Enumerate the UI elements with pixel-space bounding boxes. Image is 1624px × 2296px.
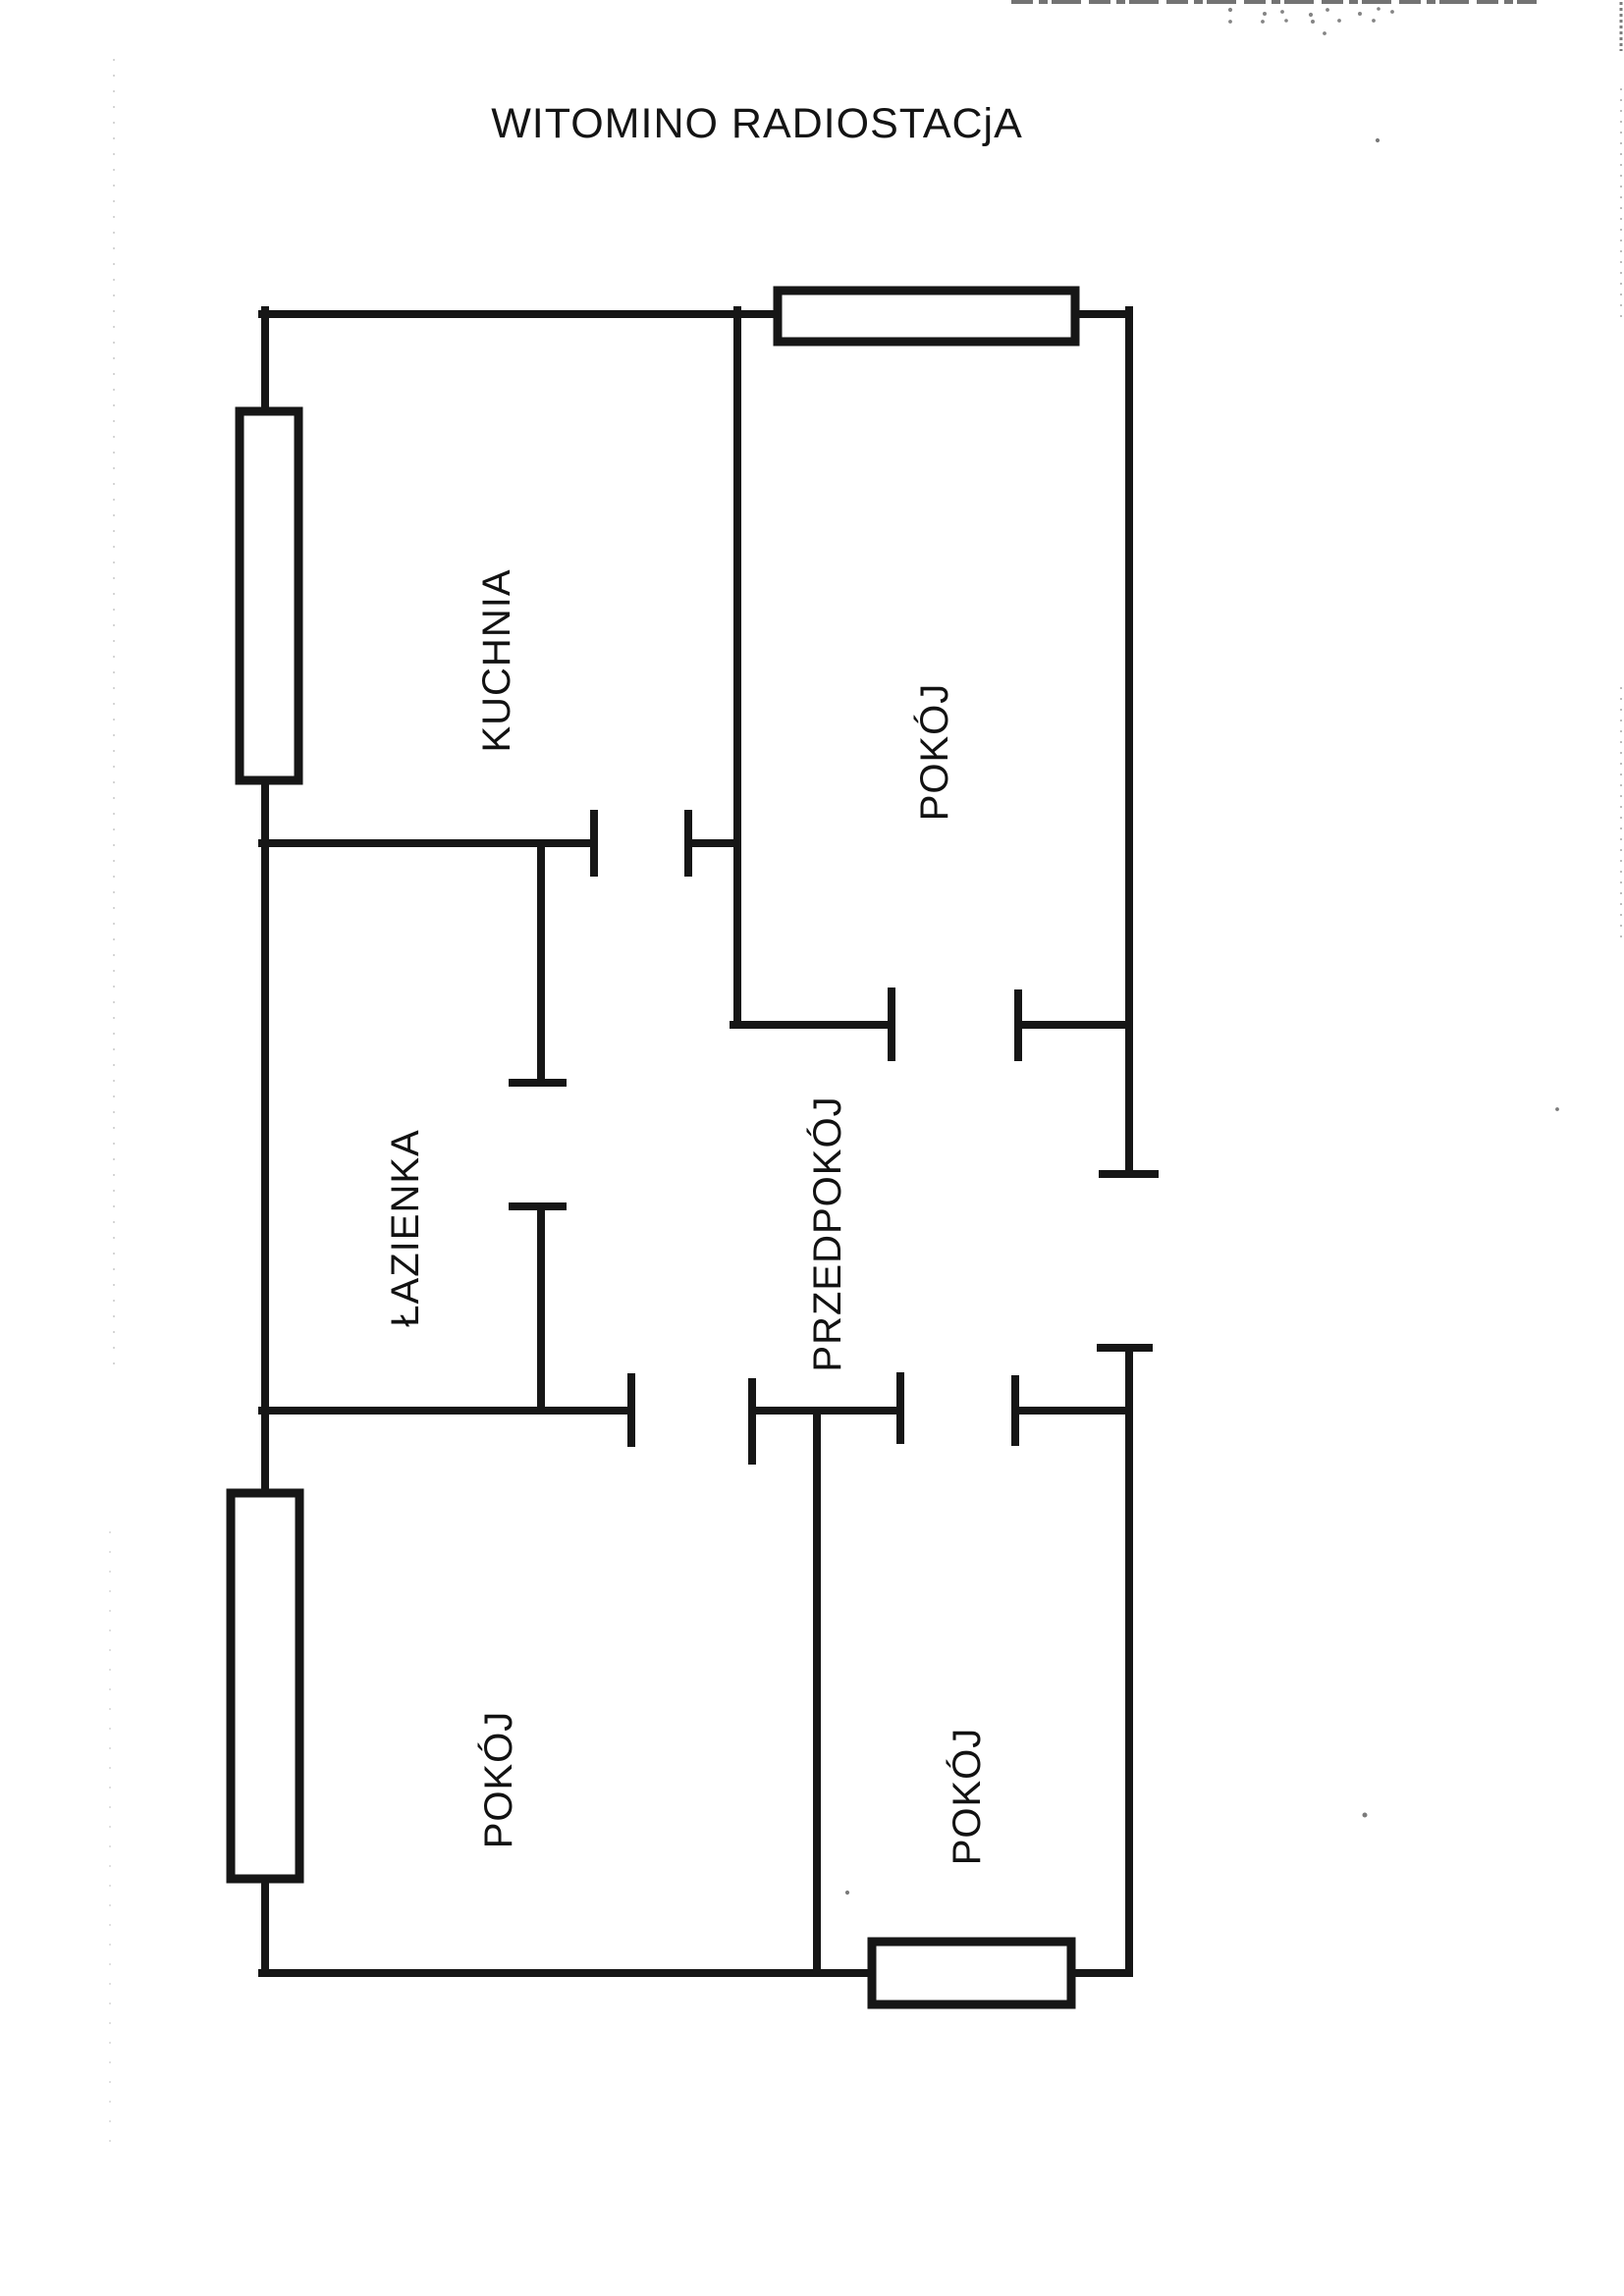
outer-wall-right-lower	[1101, 1348, 1149, 1973]
outer-wall-right-upper	[1103, 310, 1155, 1174]
window-bottom	[872, 1942, 1071, 2004]
room-label-pokoj-top-right: POKÓJ	[912, 683, 956, 822]
wall-bathroom-right-lower	[513, 1206, 563, 1411]
wall-top-right-room-bottom	[733, 991, 1129, 1057]
walls	[231, 291, 1155, 2004]
floor-plan-drawing: WITOMINO RADIOSTACjA	[0, 0, 1624, 2296]
window-top	[778, 291, 1075, 342]
room-label-pokoj-bottom-left: POKÓJ	[476, 1711, 520, 1849]
room-label-kuchnia: KUCHNIA	[475, 568, 518, 752]
wall-hallway-middle	[262, 1376, 1129, 1461]
wall-kitchen-bathroom	[262, 814, 737, 873]
stray-dots	[845, 138, 1558, 1894]
window-left-lower	[231, 1493, 299, 1879]
room-label-pokoj-bottom-right: POKÓJ	[945, 1728, 989, 1866]
room-labels: KUCHNIA POKÓJ ŁAZIENKA PRZEDPOKÓJ POKÓJ …	[384, 568, 989, 1865]
room-label-przedpokoj: PRZEDPOKÓJ	[805, 1095, 849, 1371]
scanned-floor-plan-page: WITOMINO RADIOSTACjA	[0, 0, 1624, 2296]
page-title: WITOMINO RADIOSTACjA	[491, 100, 1023, 147]
room-label-lazienka: ŁAZIENKA	[384, 1129, 427, 1326]
scan-noise-dots-top-right	[1228, 8, 1393, 35]
wall-bathroom-right-upper	[513, 843, 563, 1083]
window-left-upper	[240, 411, 298, 780]
